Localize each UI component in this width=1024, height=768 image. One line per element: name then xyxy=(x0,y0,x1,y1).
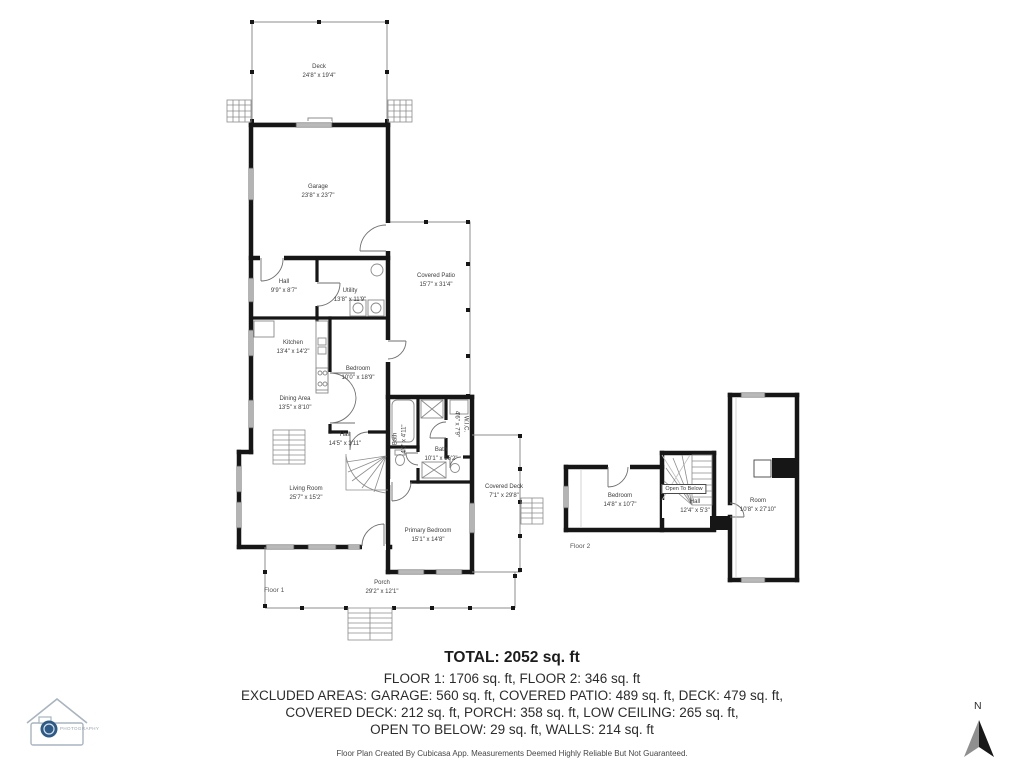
room-label-covered-patio: Covered Patio 15'7" x 31'4" xyxy=(417,272,455,291)
room-label-bath: Bath 10'1" x 16'2" xyxy=(425,446,458,465)
room-label-hall-f2: Hall 12'4" x 5'3" xyxy=(680,498,710,517)
floor1-walls xyxy=(239,125,472,572)
area-summary: TOTAL: 2052 sq. ft FLOOR 1: 1706 sq. ft,… xyxy=(0,649,1024,766)
floorplan-page: Deck 24'8" x 19'4" Garage 23'8" x 23'7" … xyxy=(0,0,1024,768)
covered-patio-outline xyxy=(388,222,470,398)
summary-disclaimer: Floor Plan Created By Cubicasa App. Meas… xyxy=(0,749,1024,758)
deck-side-stairs xyxy=(521,498,543,524)
room-label-kitchen: Kitchen 13'4" x 14'2" xyxy=(277,339,310,358)
room-label-bath-small: Bath 4'6" x 4'11" xyxy=(392,424,411,453)
floor2-tag: Floor 2 xyxy=(570,543,590,550)
photography-logo-text: PHOTOGRAPHY xyxy=(60,726,99,731)
deck-stairs-left xyxy=(227,100,251,122)
room-label-bedroom-f1: Bedroom 10'0" x 18'9" xyxy=(342,365,375,384)
covered-deck-outline xyxy=(472,435,520,572)
summary-excluded3: OPEN TO BELOW: 29 sq. ft, WALLS: 214 sq.… xyxy=(0,721,1024,738)
summary-excluded1: EXCLUDED AREAS: GARAGE: 560 sq. ft, COVE… xyxy=(0,687,1024,704)
floor2-flue-box xyxy=(754,460,771,477)
room-label-deck: Deck 24'8" x 19'4" xyxy=(303,63,336,82)
stairs-winder xyxy=(346,454,388,493)
room-label-hall-lower: Hall 14'5" x 3'11" xyxy=(329,431,361,450)
room-label-primary-bedroom: Primary Bedroom 15'1" x 14'8" xyxy=(405,527,452,546)
room-label-dining-area: Dining Area 13'5" x 8'10" xyxy=(279,395,312,414)
room-label-bedroom-f2: Bedroom 14'8" x 10'7" xyxy=(604,492,637,511)
room-label-living-room: Living Room 25'7" x 15'2" xyxy=(289,485,322,504)
summary-total: TOTAL: 2052 sq. ft xyxy=(0,649,1024,667)
floor1-windows xyxy=(236,121,476,576)
summary-floors: FLOOR 1: 1706 sq. ft, FLOOR 2: 346 sq. f… xyxy=(0,670,1024,687)
room-label-garage: Garage 23'8" x 23'7" xyxy=(302,183,335,202)
room-label-utility: Utility 13'8" x 11'9" xyxy=(334,287,366,306)
floor2-wall-block xyxy=(710,516,732,530)
floor1-tag: Floor 1 xyxy=(264,587,284,594)
room-label-hall-upper: Hall 9'9" x 8'7" xyxy=(271,278,297,297)
room-label-covered-deck: Covered Deck 7'1" x 29'8" xyxy=(485,483,523,502)
stairs-dining-hatch xyxy=(273,430,305,464)
compass-north-label: N xyxy=(974,700,982,712)
room-label-porch: Porch 29'2" x 12'1" xyxy=(366,579,399,598)
open-to-below-label: Open To Below xyxy=(661,484,706,494)
porch-steps xyxy=(348,608,392,640)
covered-patio-posts xyxy=(424,220,470,398)
room-label-room-f2: Room 10'8" x 27'10" xyxy=(740,497,776,516)
summary-excluded2: COVERED DECK: 212 sq. ft, PORCH: 358 sq.… xyxy=(0,704,1024,721)
floor2-chimney xyxy=(772,458,797,478)
deck-stairs-right xyxy=(388,100,412,122)
room-label-wic: W.I.C. 4'6" x 7'9" xyxy=(451,411,470,437)
